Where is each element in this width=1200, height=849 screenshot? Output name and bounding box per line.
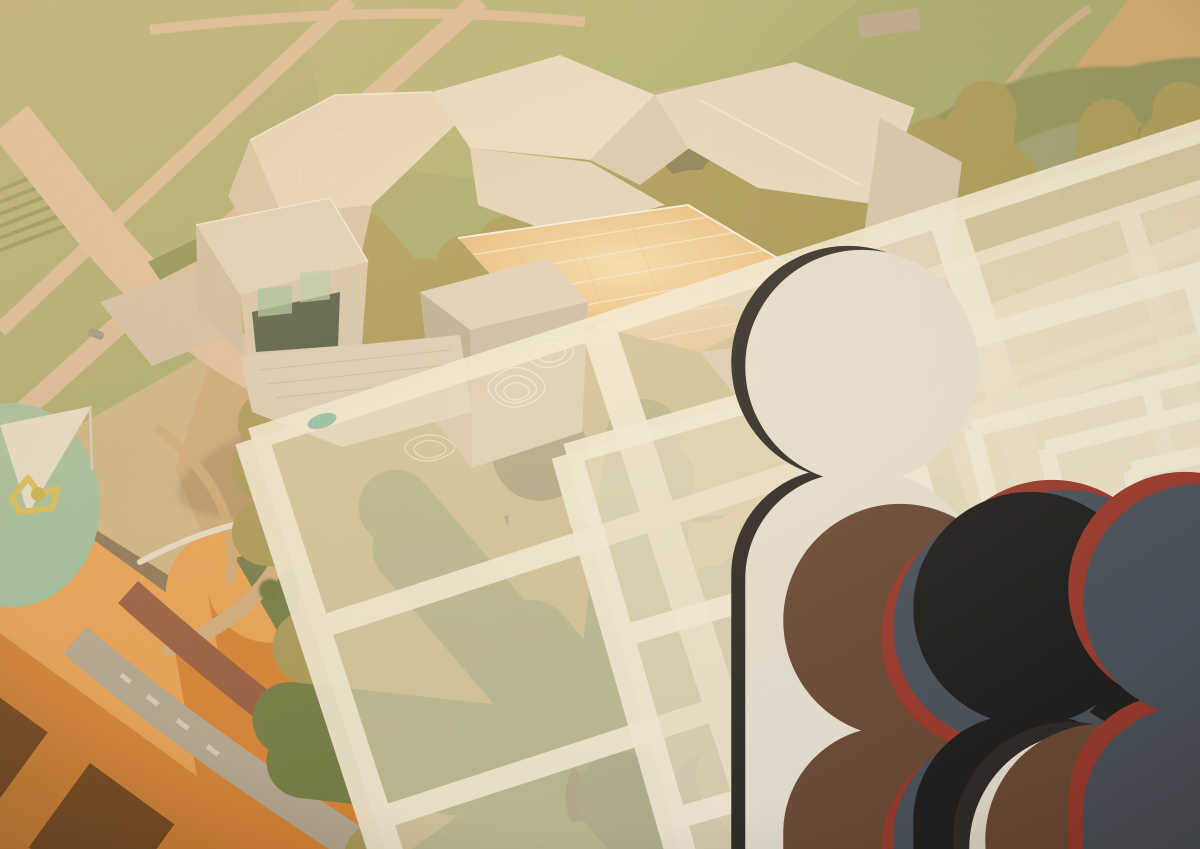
vignette [0,0,1200,849]
scene-canvas: Dino Exhibition [0,0,1200,849]
aerial-rendering: Dino Exhibition [0,0,1200,849]
